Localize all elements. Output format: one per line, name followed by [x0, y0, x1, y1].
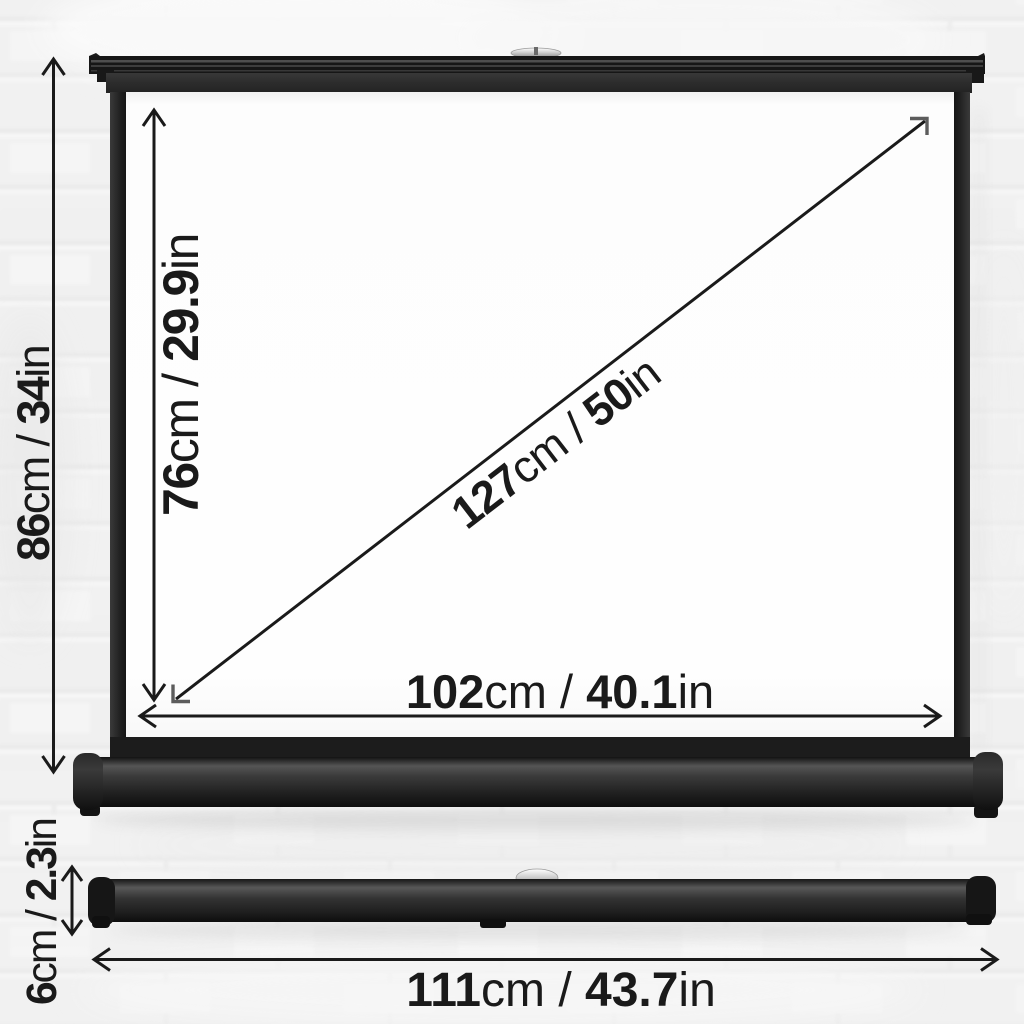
svg-text:76cm / 29.9in: 76cm / 29.9in: [153, 234, 209, 516]
svg-text:102cm / 40.1in: 102cm / 40.1in: [406, 665, 714, 718]
svg-text:111cm / 43.7in: 111cm / 43.7in: [406, 964, 716, 1017]
svg-text:6cm / 2.3in: 6cm / 2.3in: [19, 819, 66, 1005]
svg-text:86cm / 34in: 86cm / 34in: [8, 346, 59, 561]
